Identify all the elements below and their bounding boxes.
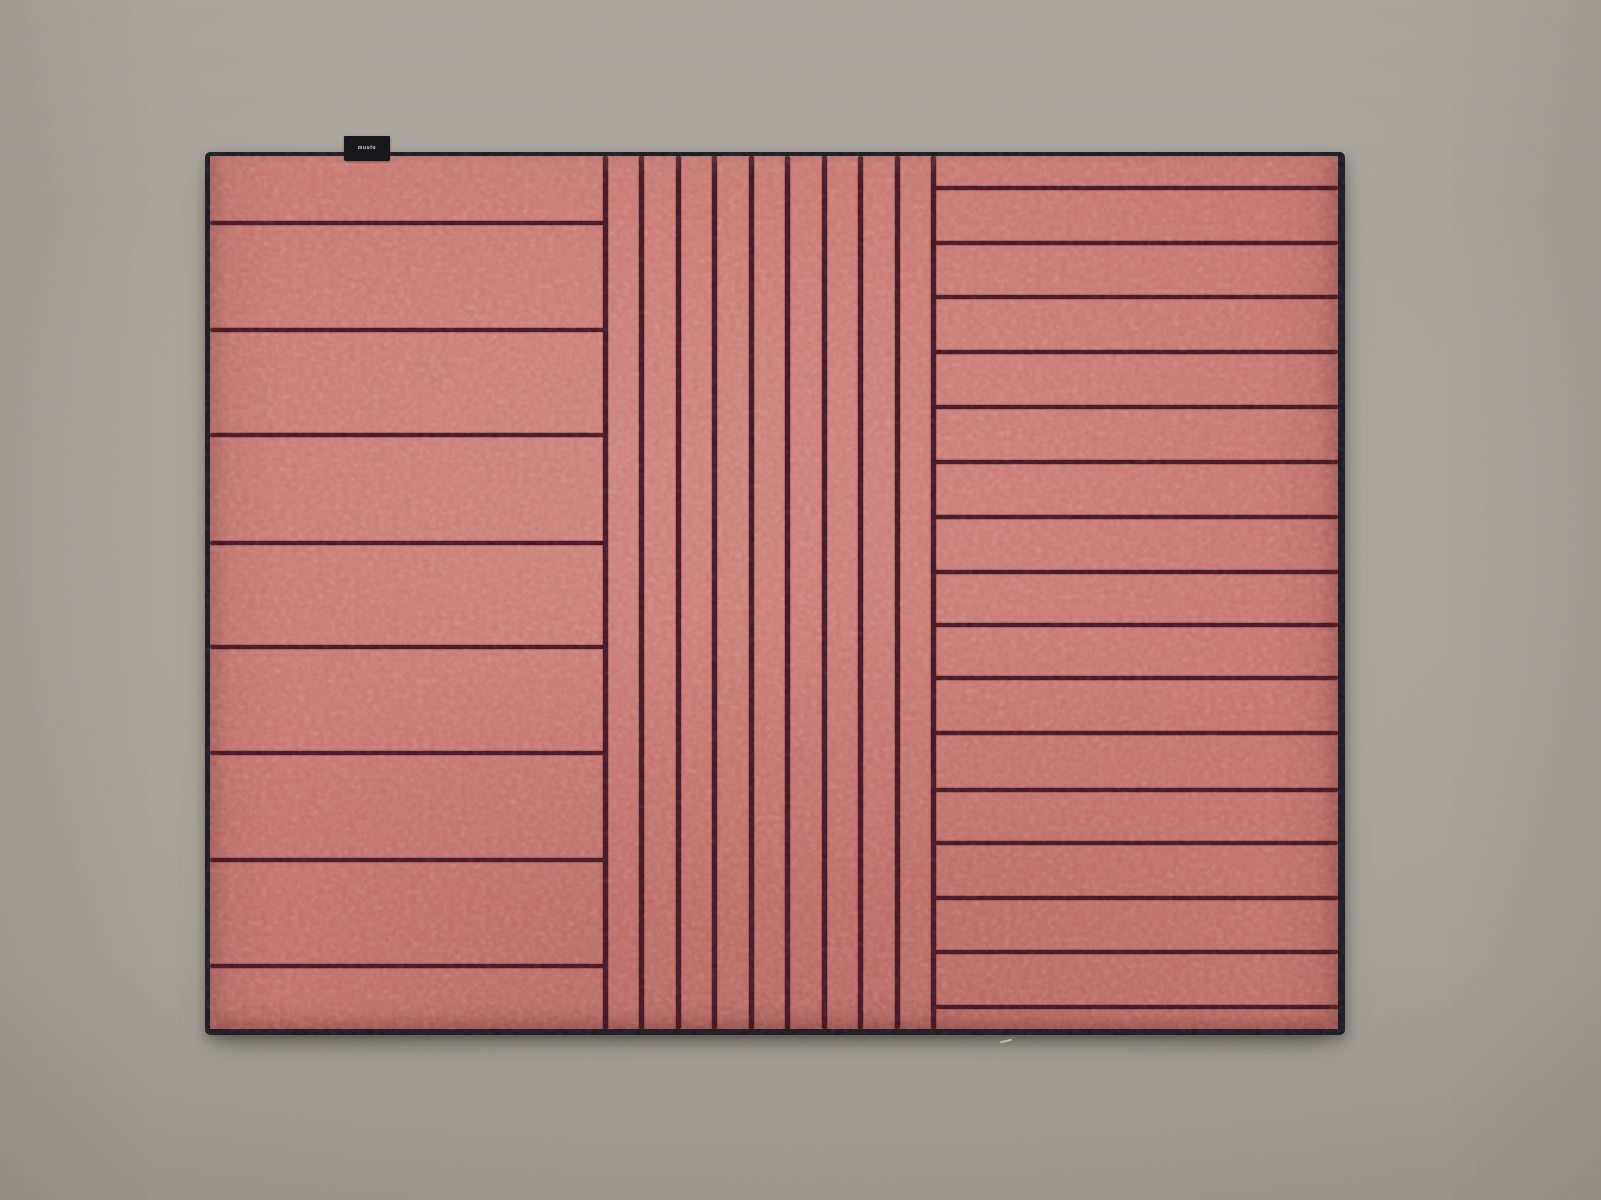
rug — [205, 152, 1345, 1035]
rug-edge-shading — [210, 156, 1338, 1029]
brand-tag: muuto — [344, 136, 390, 161]
product-photo-scene: muuto — [0, 0, 1601, 1200]
brand-tag-label: muuto — [358, 146, 376, 151]
